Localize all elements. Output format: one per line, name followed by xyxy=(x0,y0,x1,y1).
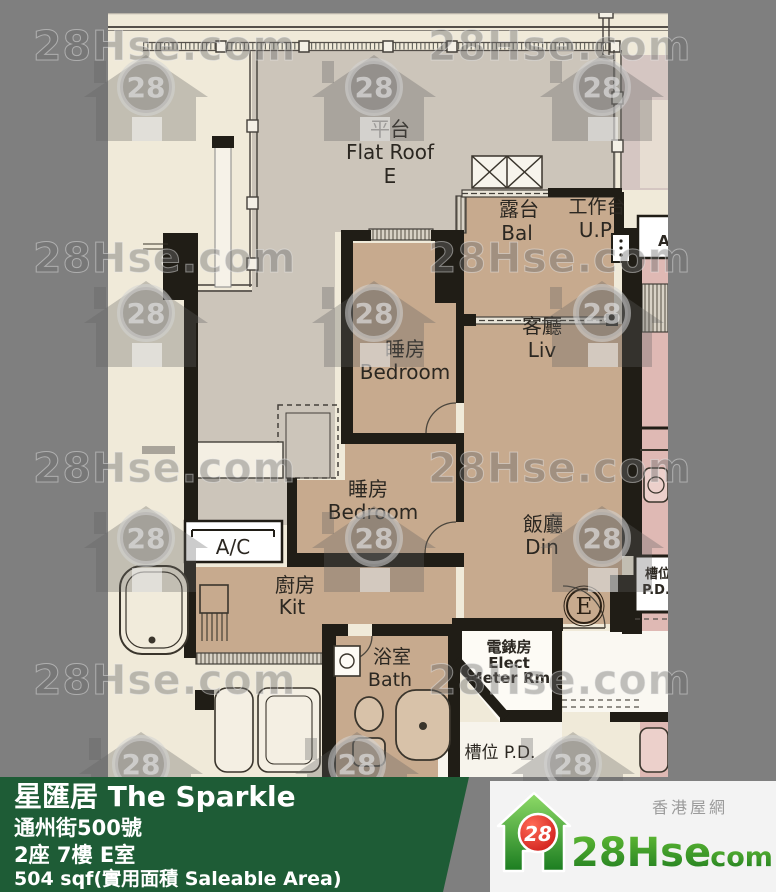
bath-label-en: Bath xyxy=(368,669,412,691)
watermark-text: 28Hse.com xyxy=(33,656,296,704)
watermark-text: 28Hse.com xyxy=(33,234,296,282)
watermark-text: 28Hse.com xyxy=(428,444,691,492)
bath-label-zh: 浴室 xyxy=(373,646,411,668)
kitchen-label-en: Kit xyxy=(279,595,306,619)
bedroom2-label-zh: 睡房 xyxy=(348,477,388,501)
footer: 星匯居 The Sparkle 通州街500號 2座 7樓 E室 504 sqf… xyxy=(0,777,776,892)
floorplan-page: E 平台 Flat Roof E 露台 Bal 工作台 U.P. 客廳 Liv … xyxy=(0,0,776,892)
brand-badge-number: 28 xyxy=(524,822,552,846)
kitchen-label-zh: 廚房 xyxy=(275,573,315,597)
watermark-text: 28Hse.com xyxy=(33,444,296,492)
watermark-text: 28Hse.com xyxy=(428,234,691,282)
canopy-frame xyxy=(472,156,542,188)
unit-info: 2座 7樓 E室 xyxy=(14,843,135,867)
flat-roof-label-unit: E xyxy=(384,164,397,188)
area-info: 504 sqf(實用面積 Saleable Area) xyxy=(14,867,342,890)
brand-site-tld: .com xyxy=(700,842,773,873)
building-name: 星匯居 The Sparkle xyxy=(14,780,296,813)
building-address: 通州街500號 xyxy=(14,816,142,840)
wall-cap xyxy=(212,136,234,148)
flat-roof-label-en: Flat Roof xyxy=(346,140,435,164)
brand-site-main: 28Hse xyxy=(571,830,711,876)
brand-tagline: 香港屋網 xyxy=(652,798,728,817)
balcony-label-zh: 露台 xyxy=(499,197,539,221)
ac-label: A/C xyxy=(216,535,250,559)
watermark-text: 28Hse.com xyxy=(428,656,691,704)
floorplan-image: E 平台 Flat Roof E 露台 Bal 工作台 U.P. 客廳 Liv … xyxy=(0,0,776,892)
utility-label-zh: 工作台 xyxy=(568,196,625,218)
watermark-text: 28Hse.com xyxy=(33,22,296,70)
unit-marker-label: E xyxy=(576,594,593,620)
